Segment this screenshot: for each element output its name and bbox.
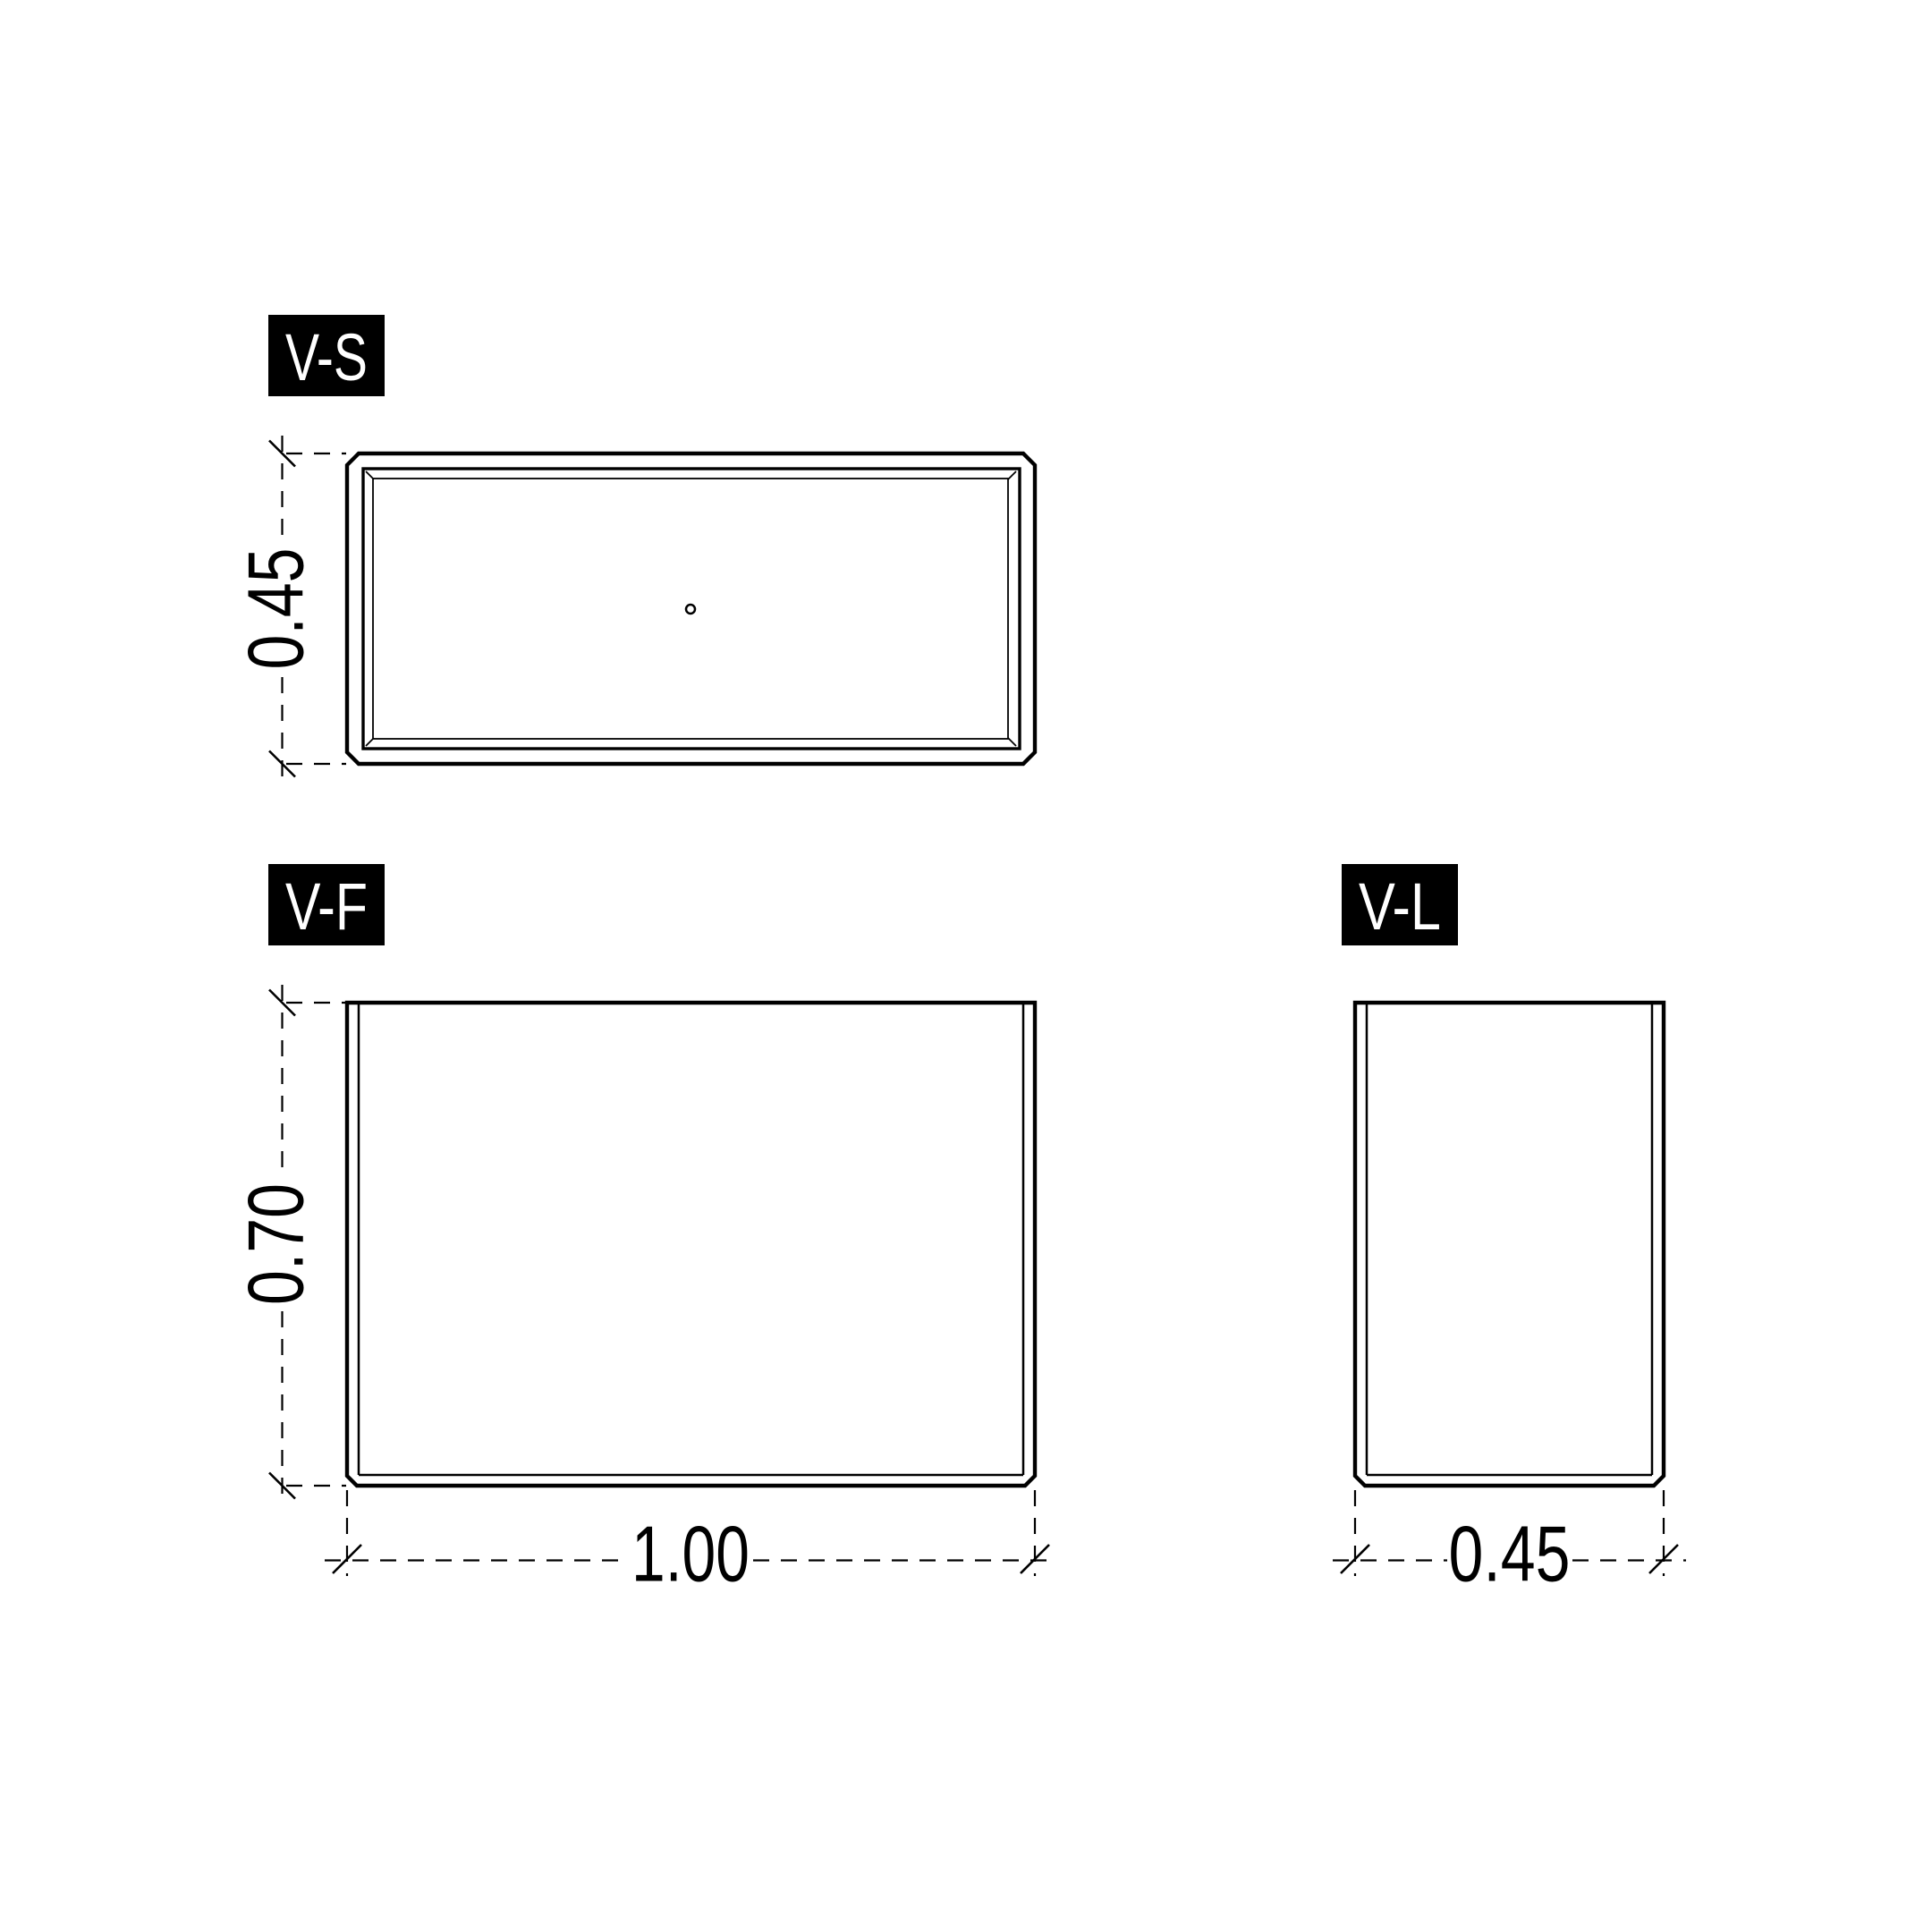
top-view-inner-frame-outer — [363, 469, 1020, 749]
view-label-side-text: V-L — [1359, 869, 1441, 944]
view-label-front-text: V-F — [285, 869, 368, 944]
side-view — [1355, 1003, 1664, 1486]
top-view-center-hole — [686, 605, 695, 614]
dim-top-height: 0.45 — [232, 436, 347, 782]
dim-side-width: 0.45 — [1333, 1490, 1686, 1598]
dim-front-width-text: 1.00 — [631, 1510, 750, 1598]
view-label-top: V-S — [268, 315, 385, 396]
front-view-outline — [347, 1003, 1035, 1486]
top-view-outline — [347, 453, 1035, 764]
dim-front-height: 0.70 — [232, 985, 347, 1504]
top-view-frame-miter-bl — [366, 738, 374, 746]
dim-top-height-text: 0.45 — [232, 548, 320, 670]
top-view-frame-miter-tr — [1008, 471, 1016, 479]
top-view-frame-miter-br — [1008, 738, 1016, 746]
dim-front-width: 1.00 — [325, 1490, 1057, 1598]
top-view-frame-miter-tl — [366, 471, 374, 479]
view-label-front: V-F — [268, 864, 385, 945]
view-label-side: V-L — [1342, 864, 1458, 945]
top-view-inner-frame-inner — [373, 479, 1008, 739]
dim-side-width-text: 0.45 — [1449, 1510, 1571, 1598]
front-view — [347, 1003, 1035, 1486]
side-view-outline — [1355, 1003, 1664, 1486]
top-view — [347, 453, 1035, 764]
view-label-top-text: V-S — [285, 320, 368, 394]
technical-drawing-canvas: V-S 0.45 V-F 0.70 1 — [0, 0, 1932, 1932]
dim-front-height-text: 0.70 — [232, 1183, 320, 1305]
